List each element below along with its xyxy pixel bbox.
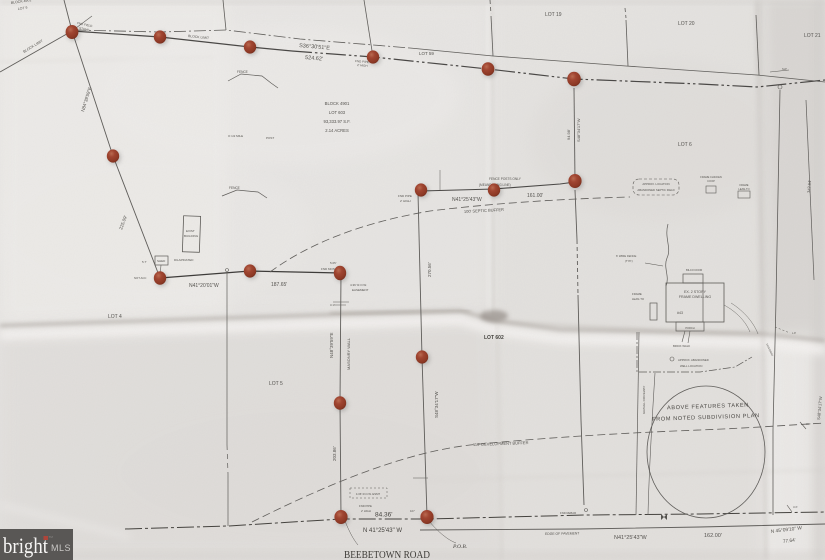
svg-text:5.7': 5.7' (142, 260, 147, 264)
svg-text:84.36': 84.36' (375, 512, 393, 519)
svg-text:N41°25'43"W: N41°25'43"W (614, 535, 648, 541)
svg-text:LOT 21: LOT 21 (804, 33, 821, 39)
svg-text:SLP: SLP (782, 67, 787, 71)
svg-text:BILCO DOOR: BILCO DOOR (686, 268, 702, 272)
svg-text:FND PIPE: FND PIPE (398, 194, 412, 198)
svg-text:FND PIPE: FND PIPE (359, 504, 372, 508)
svg-text:EXIST: EXIST (186, 229, 195, 233)
svg-text:POST: POST (266, 136, 274, 140)
svg-text:LOT 59: LOT 59 (419, 51, 434, 56)
svg-text:FND MON: FND MON (321, 267, 335, 271)
svg-text:APPROX. LOCATION: APPROX. LOCATION (642, 182, 669, 186)
svg-text:BLOCK 4901: BLOCK 4901 (325, 101, 350, 106)
svg-text:LOT 6: LOT 6 (678, 142, 692, 148)
svg-text:BEEBETOWN ROAD: BEEBETOWN ROAD (344, 549, 430, 560)
svg-text:(TYP.): (TYP.) (625, 259, 633, 263)
svg-text:PORCH: PORCH (685, 326, 694, 330)
svg-text:GRAVEL DRIVEWAY: GRAVEL DRIVEWAY (642, 386, 646, 414)
svg-text:BUILDING: BUILDING (184, 234, 199, 238)
svg-text:BRICK WALK: BRICK WALK (673, 344, 690, 348)
svg-text:DILAPIDATED: DILAPIDATED (174, 258, 194, 262)
svg-text:WELL LOCATION: WELL LOCATION (680, 364, 702, 368)
svg-text:FRAME: FRAME (739, 183, 748, 187)
svg-text:6' WIRE FENCE: 6' WIRE FENCE (616, 254, 637, 258)
svg-text:187.65': 187.65' (271, 282, 287, 288)
svg-text:FENCE: FENCE (229, 186, 240, 190)
svg-text:S48°34'17"W: S48°34'17"W (576, 118, 581, 142)
svg-text:LOT 20: LOT 20 (678, 21, 695, 27)
svg-text:NOT ACC: NOT ACC (134, 276, 146, 280)
svg-text:2' HIGH: 2' HIGH (400, 199, 411, 203)
svg-text:LOT 19: LOT 19 (545, 12, 562, 18)
svg-text:LEAN-TO: LEAN-TO (632, 297, 645, 301)
svg-text:COOP: COOP (707, 179, 715, 183)
svg-text:2.14 ACRES: 2.14 ACRES (325, 128, 349, 133)
svg-text:EDGE OF PAVEMENT: EDGE OF PAVEMENT (545, 531, 579, 536)
svg-text:162.00': 162.00' (704, 533, 722, 539)
svg-text:N48°39'59"E: N48°39'59"E (329, 332, 334, 358)
svg-text:3.1': 3.1' (330, 303, 335, 307)
svg-text:bright: bright (3, 533, 48, 558)
svg-text:270.56': 270.56' (427, 262, 432, 277)
svg-text:LOT 602: LOT 602 (484, 335, 504, 341)
svg-text:SHED: SHED (157, 259, 166, 263)
svg-text:161.00': 161.00' (527, 193, 543, 199)
svg-text:U.P.: U.P. (793, 505, 798, 509)
svg-text:4.36' R.O.W. ESMT: 4.36' R.O.W. ESMT (356, 492, 381, 496)
svg-text:107: 107 (410, 509, 415, 513)
svg-text:N 41°25'43" W: N 41°25'43" W (363, 528, 402, 534)
svg-text:FRAME CHICKEN: FRAME CHICKEN (700, 175, 722, 179)
svg-text:LEAN-TO: LEAN-TO (738, 187, 749, 191)
svg-text:FRAME: FRAME (632, 292, 642, 296)
svg-text:94.98': 94.98' (566, 129, 571, 140)
svg-text:93,333.97 S.F.: 93,333.97 S.F. (323, 119, 350, 124)
svg-text:L.P.: L.P. (792, 331, 797, 335)
svg-text:203.86': 203.86' (332, 446, 337, 461)
svg-text:EASEMENT: EASEMENT (352, 288, 369, 292)
svg-text:ABANDONED SEPTIC FIELD: ABANDONED SEPTIC FIELD (637, 188, 674, 192)
svg-text:S48°34'17"W: S48°34'17"W (434, 391, 439, 418)
svg-text:FENCE POSTS ONLY: FENCE POSTS ONLY (489, 177, 522, 181)
svg-text:LOT 5: LOT 5 (269, 381, 283, 387)
svg-text:N41°25'43"W: N41°25'43"W (452, 197, 482, 203)
svg-text:2' HIGH: 2' HIGH (361, 509, 371, 513)
svg-text:TM: TM (49, 535, 54, 539)
svg-text:5.05': 5.05' (330, 261, 337, 265)
svg-text:LOT 4: LOT 4 (108, 314, 122, 320)
svg-text:U.P.: U.P. (806, 422, 811, 426)
svg-text:P.O.B.: P.O.B. (452, 544, 467, 550)
svg-text:MASONRY WALL: MASONRY WALL (346, 337, 351, 370)
svg-text:#43: #43 (677, 311, 683, 315)
svg-text:N41°20'01"W: N41°20'01"W (189, 283, 219, 289)
svg-text:APPROX. ABANDONED: APPROX. ABANDONED (678, 358, 709, 362)
svg-text:EX. 2 STORY: EX. 2 STORY (684, 290, 707, 294)
svg-text:FENCE: FENCE (237, 70, 248, 74)
svg-text:4.36' R.O.W.: 4.36' R.O.W. (350, 283, 367, 287)
svg-text:MLS: MLS (51, 543, 71, 553)
svg-text:LOT 603: LOT 603 (329, 110, 346, 115)
svg-text:FRAME DWELLING: FRAME DWELLING (679, 295, 712, 299)
svg-text:FND REBAR: FND REBAR (560, 511, 576, 515)
svg-text:O 1/2 MILE: O 1/2 MILE (228, 134, 243, 138)
